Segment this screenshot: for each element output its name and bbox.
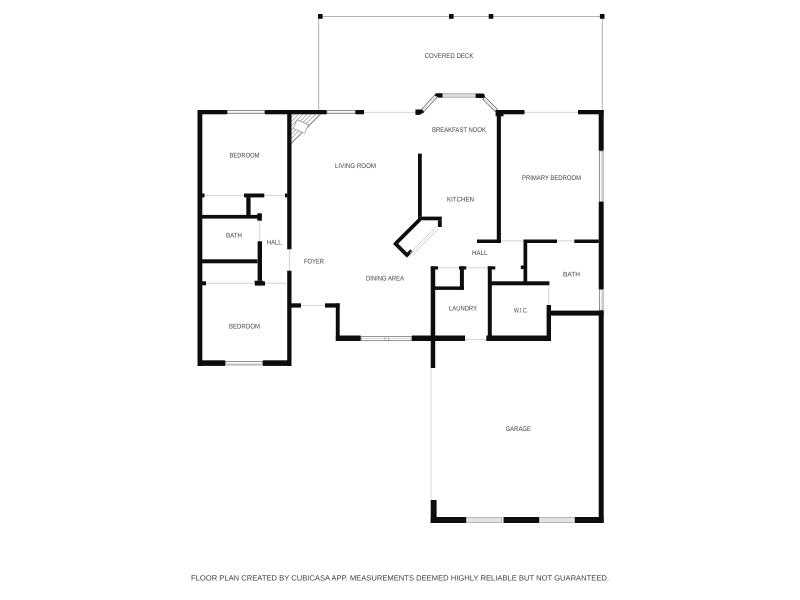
svg-text:BEDROOM: BEDROOM bbox=[230, 153, 260, 160]
svg-text:FLOOR PLAN CREATED BY CUBICASA: FLOOR PLAN CREATED BY CUBICASA APP. MEAS… bbox=[191, 574, 609, 583]
svg-text:LAUNDRY: LAUNDRY bbox=[449, 306, 477, 313]
svg-text:DINING AREA: DINING AREA bbox=[366, 276, 404, 283]
svg-text:BATH: BATH bbox=[226, 233, 242, 240]
svg-text:FOYER: FOYER bbox=[304, 259, 324, 266]
svg-text:PRIMARY BEDROOM: PRIMARY BEDROOM bbox=[522, 175, 581, 182]
svg-text:KITCHEN: KITCHEN bbox=[447, 197, 474, 204]
svg-text:GARAGE: GARAGE bbox=[506, 426, 532, 433]
svg-text:LIVING ROOM: LIVING ROOM bbox=[335, 163, 376, 170]
svg-text:BEDROOM: BEDROOM bbox=[229, 324, 260, 331]
svg-text:HALL: HALL bbox=[472, 250, 488, 257]
svg-text:COVERED DECK: COVERED DECK bbox=[425, 53, 474, 60]
svg-text:W.I.C.: W.I.C. bbox=[514, 308, 528, 315]
svg-text:BATH: BATH bbox=[563, 272, 580, 279]
svg-text:BREAKFAST NOOK: BREAKFAST NOOK bbox=[432, 127, 486, 134]
svg-text:HALL: HALL bbox=[267, 239, 282, 246]
